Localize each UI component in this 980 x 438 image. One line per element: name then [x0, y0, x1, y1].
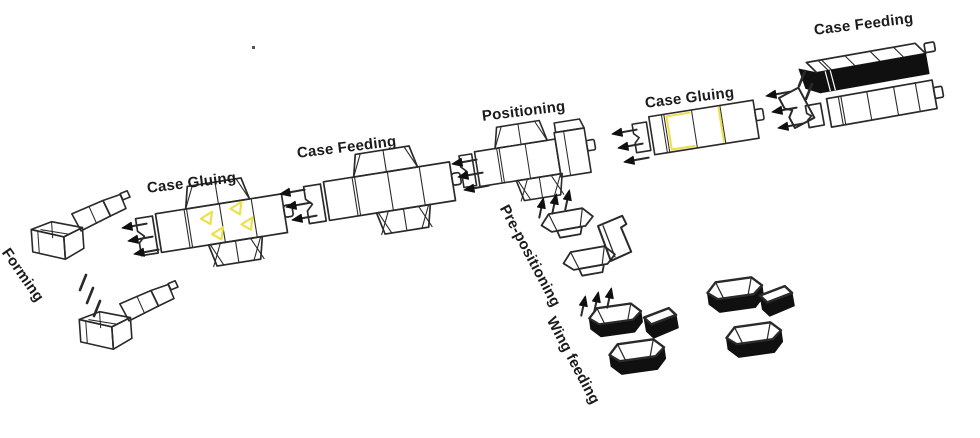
- flow-arrow-up-set-1: [535, 189, 573, 218]
- station-forming: [29, 191, 182, 352]
- process-flow-diagram: Case Feeding Case Gluing Positioning Cas…: [0, 0, 980, 438]
- station-pre-positioning: [540, 207, 634, 279]
- flow-arrow-left-set-2: [611, 126, 649, 166]
- station-wing-feeding: [588, 276, 795, 376]
- glue-highlight: [667, 108, 724, 149]
- station-case-feeding-top-right: [798, 40, 945, 131]
- diagram-canvas: [0, 0, 980, 438]
- flow-arrow-left-set-3: [451, 156, 489, 194]
- scan-artifact-dot: [252, 46, 255, 49]
- station-positioning: [455, 112, 601, 209]
- glue-highlight: [199, 201, 255, 243]
